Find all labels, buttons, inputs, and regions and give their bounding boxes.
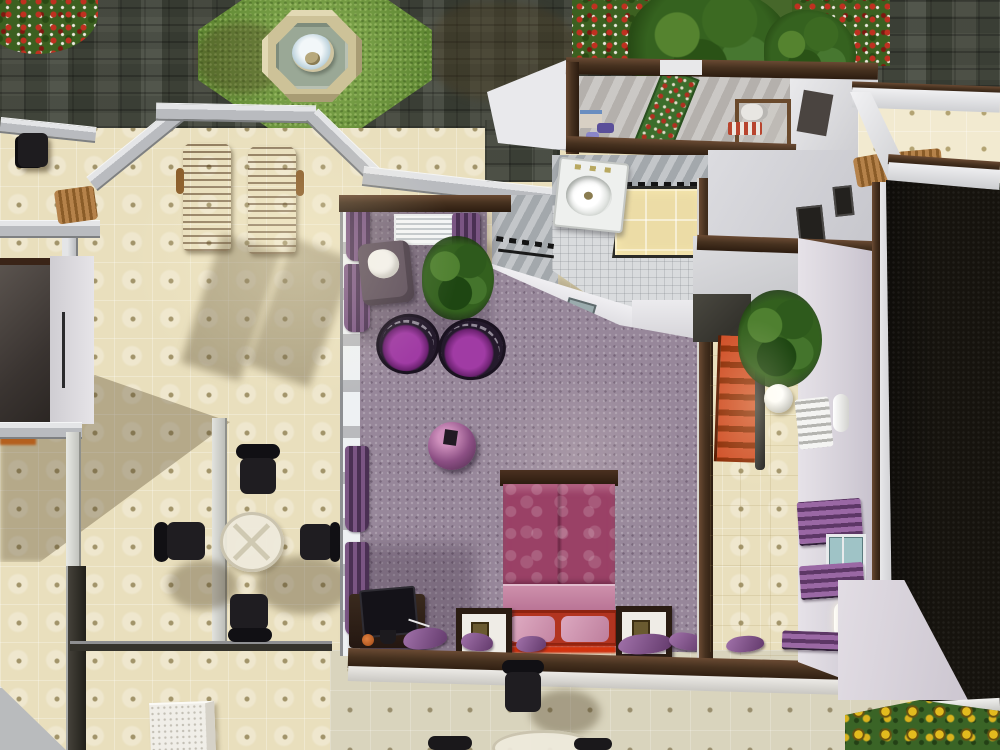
shelf-bottles[interactable] <box>597 123 614 133</box>
double-bed[interactable] <box>500 470 618 652</box>
monitor-stand <box>380 630 396 644</box>
bedroom-potted-plant[interactable] <box>422 236 494 320</box>
balcony-bottom-wall <box>0 220 100 238</box>
dining-chair-west[interactable] <box>154 518 206 562</box>
lower-room-chair[interactable] <box>500 660 546 712</box>
balcony-bench[interactable] <box>54 185 98 224</box>
wall-sconce-upper[interactable] <box>833 394 849 432</box>
white-throw-cloth <box>367 248 401 280</box>
bedroom-top-wall-cap <box>339 195 511 212</box>
sink-faucet <box>575 164 611 173</box>
bed-quilt <box>503 484 615 586</box>
pedestal-sink[interactable] <box>553 157 630 234</box>
hallway-potted-plant[interactable] <box>738 290 822 388</box>
striped-towel[interactable] <box>728 122 762 135</box>
bed-pillow-right <box>561 616 609 642</box>
sphere-sculpture[interactable] <box>764 384 793 413</box>
utility-doorway-gap[interactable] <box>660 60 702 75</box>
glass-partition-vertical <box>66 566 86 750</box>
dining-chair-south[interactable] <box>228 592 272 642</box>
shower-stall[interactable] <box>612 186 706 258</box>
dining-chair-north[interactable] <box>236 444 280 494</box>
balcony-chair[interactable] <box>18 133 48 167</box>
left-room-wall <box>50 256 94 424</box>
white-fence-vertical <box>66 432 81 572</box>
patio-bay-wall-top <box>156 103 316 124</box>
armchair-with-throw[interactable] <box>357 239 415 306</box>
dining-chair-east[interactable] <box>300 522 340 564</box>
glass-dining-table[interactable] <box>220 512 284 572</box>
glass-partition-horizontal <box>70 641 332 651</box>
partial-chair-bottom-right[interactable] <box>574 738 612 750</box>
game-world-viewport <box>0 0 1000 750</box>
door-handle-line[interactable] <box>62 312 65 388</box>
partial-chair-bottom-left[interactable] <box>428 736 472 750</box>
hallway-radiator[interactable] <box>794 396 833 449</box>
curtain-left-3[interactable] <box>345 446 369 532</box>
lounger-armrest-icon <box>176 168 184 194</box>
towel-roll[interactable] <box>741 104 768 120</box>
ball-lamp-switch <box>443 429 458 446</box>
coffee-mug[interactable] <box>362 634 374 646</box>
lounger-armrest-icon <box>296 170 304 196</box>
wooden-lounge-chair-2[interactable] <box>248 146 296 254</box>
wooden-lounge-chair-1[interactable] <box>183 143 231 251</box>
fountain-spout <box>305 52 320 65</box>
dark-window-slit-2[interactable] <box>832 185 854 217</box>
folded-sheet <box>503 584 615 612</box>
white-dresser[interactable] <box>149 701 216 750</box>
